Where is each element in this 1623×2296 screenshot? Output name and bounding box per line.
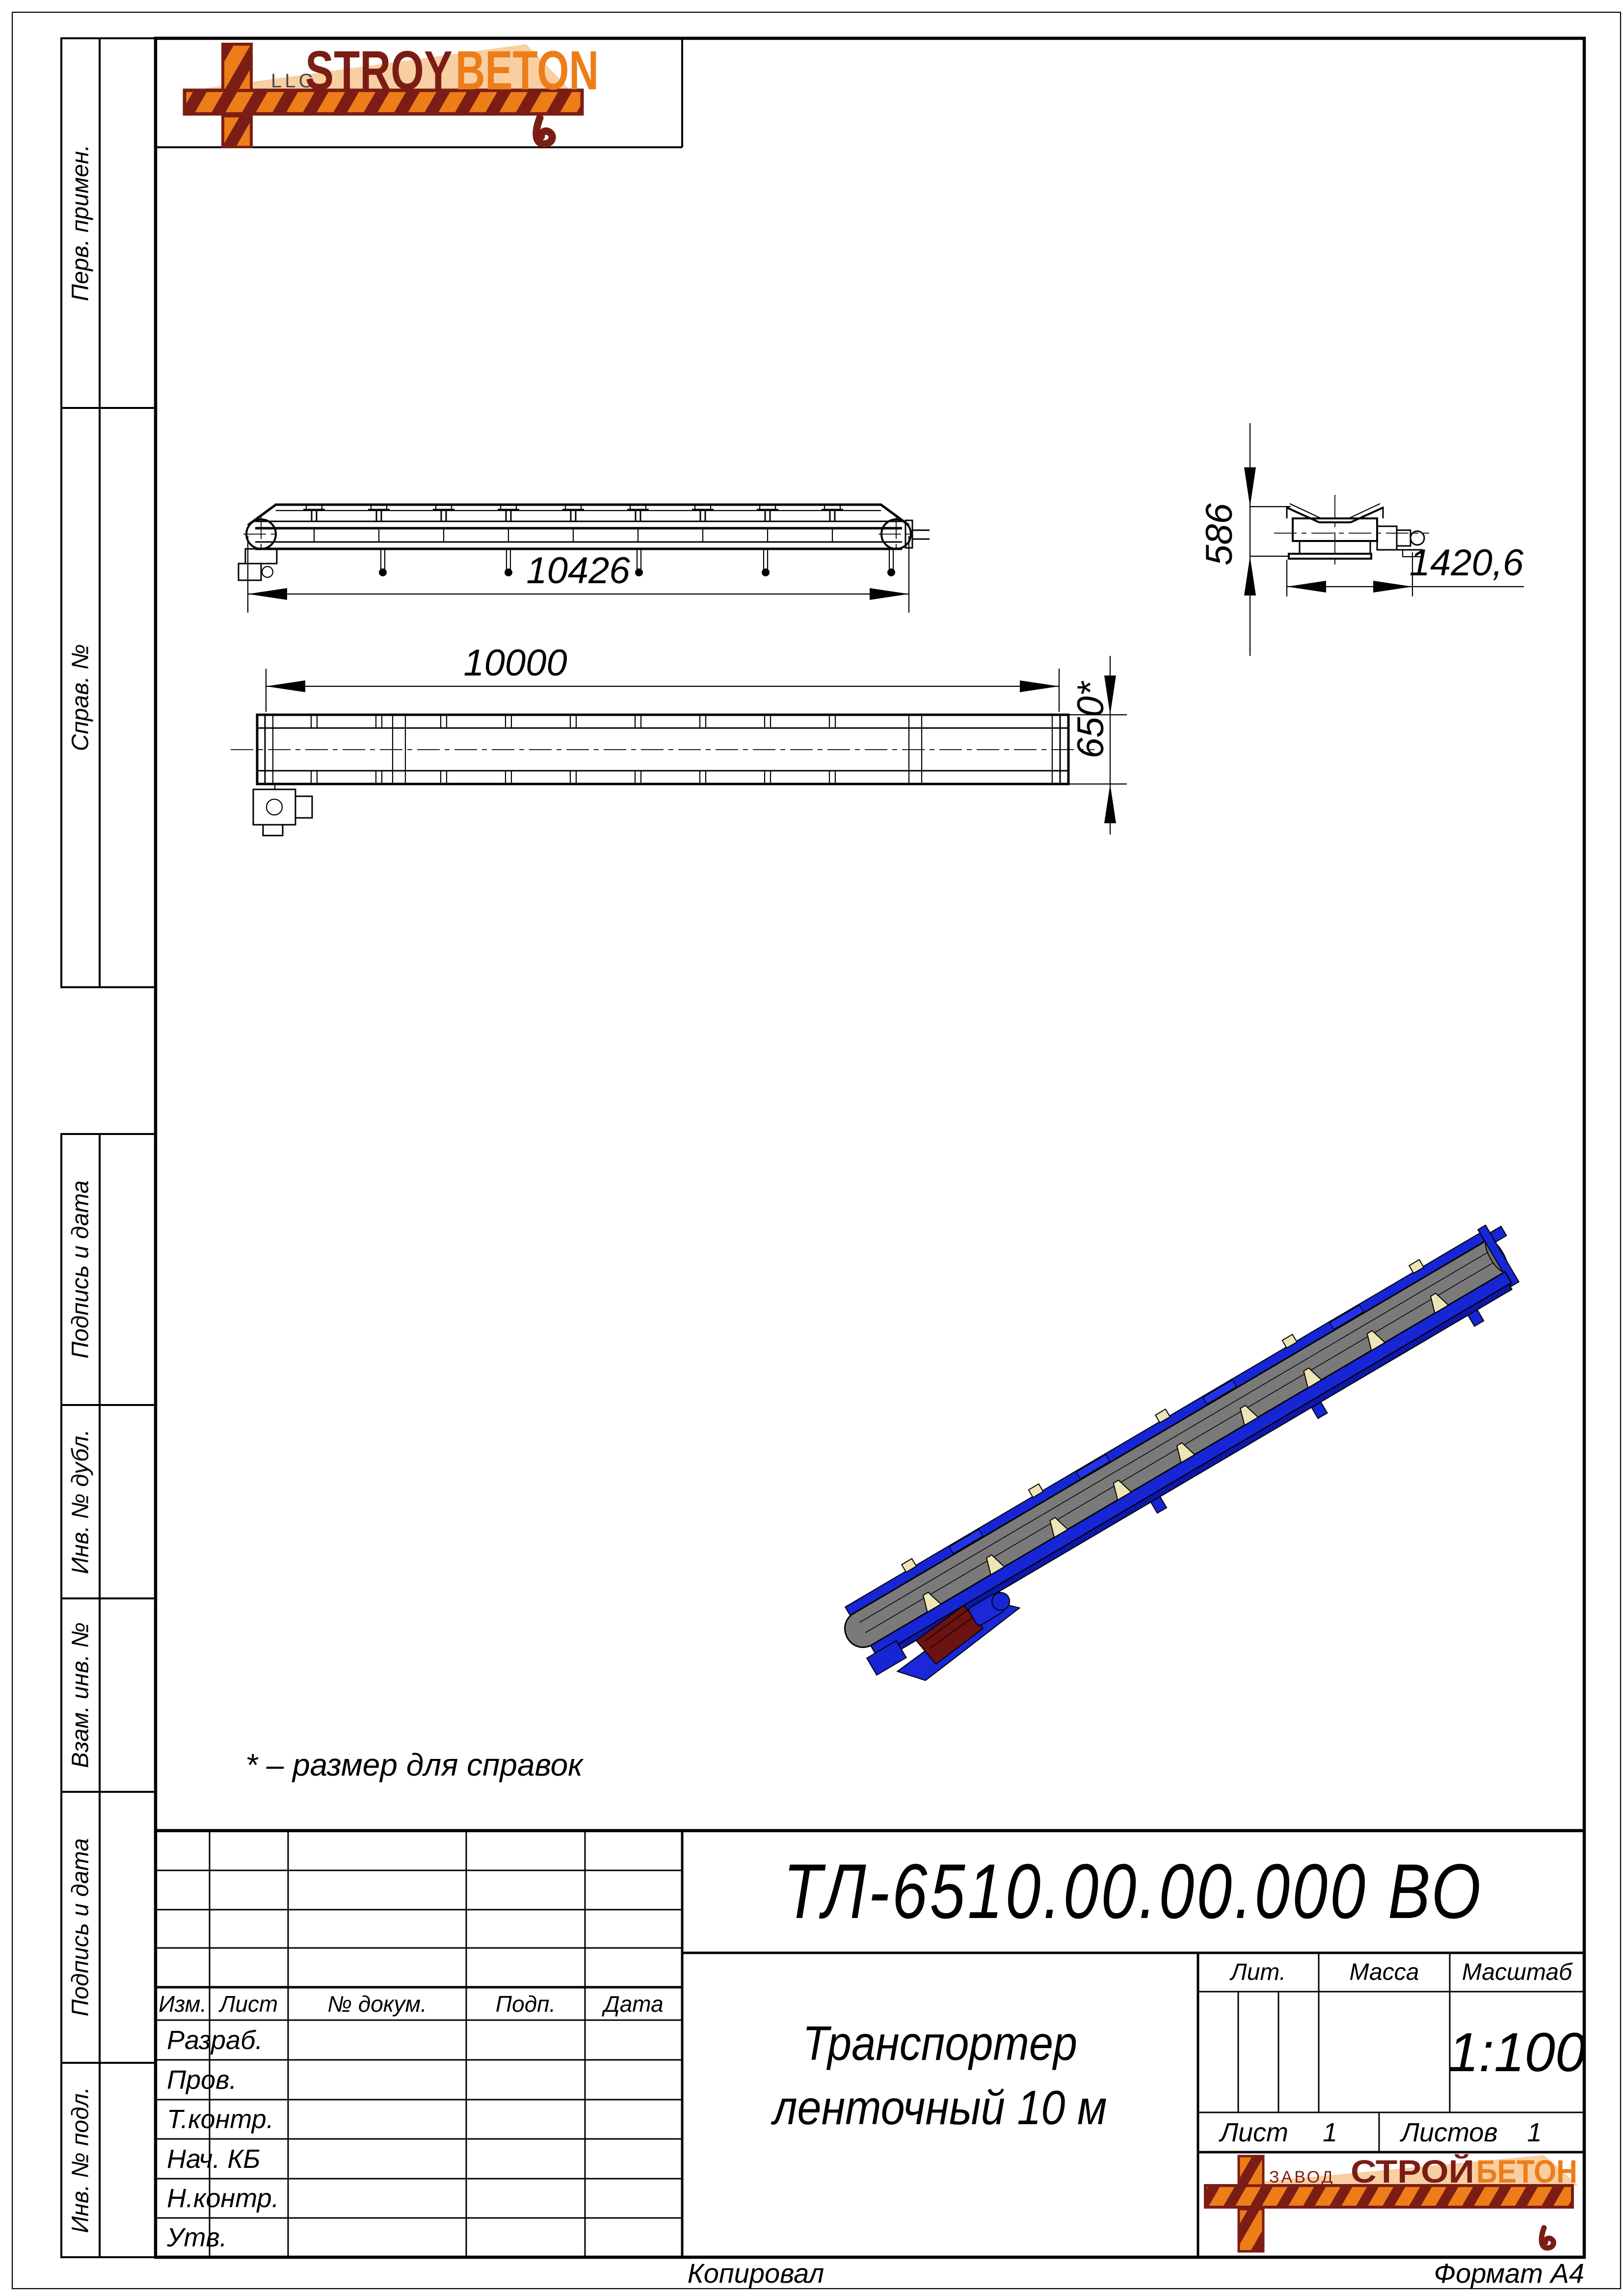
sidebar-label-vzam-inv: Взам. инв. № xyxy=(67,1622,94,1768)
roller-stands xyxy=(303,505,843,542)
row-razrab: Разраб. xyxy=(167,2020,294,2060)
iso-view xyxy=(829,1216,1551,1704)
bottom-logo: ЗАВОД СТРОЙ БЕТОН xyxy=(1200,2154,1582,2255)
sidebar-label-inv-dubl: Инв. № дубл. xyxy=(67,1429,94,1574)
plan-drive-unit xyxy=(253,784,312,836)
col-header-list: Лист xyxy=(210,1987,288,2020)
logo-stroy-text: STROY xyxy=(305,40,452,101)
dim-text-belt-width: 650* xyxy=(1070,680,1112,758)
mass-header: Масса xyxy=(1319,1953,1450,1992)
logo-crane-mast-top xyxy=(223,44,251,90)
sheets-label: Листов xyxy=(1401,2117,1498,2148)
top-logo: LLC STROY BETON xyxy=(162,40,613,148)
dim-text-drive-height: 586 xyxy=(1198,503,1240,566)
product-name-line1: Транспортер xyxy=(803,2016,1078,2071)
support-feet xyxy=(379,549,895,576)
dim-drive-height: 586 xyxy=(1198,423,1291,656)
logo-beton-text: БЕТОН xyxy=(1476,2154,1577,2189)
logo-crane-mast-top xyxy=(1239,2156,1263,2186)
logo-beton-text: BETON xyxy=(455,40,599,101)
row-nach-kb: Нач. КБ xyxy=(167,2139,294,2179)
iso-belt xyxy=(838,1241,1505,1654)
row-utv: Утв. xyxy=(167,2218,294,2257)
logo-stroy-text: СТРОЙ xyxy=(1351,2154,1474,2189)
sheet-cell: Лист 1 xyxy=(1220,2112,1379,2152)
dim-belt-width: 650* xyxy=(1068,656,1127,835)
row-tkontr: Т.контр. xyxy=(167,2100,294,2139)
end-view xyxy=(1274,495,1429,567)
col-header-dokum: № докум. xyxy=(288,1987,466,2020)
sidebar-label-sprav-no: Справ. № xyxy=(67,644,94,751)
logo-zavod-text: ЗАВОД xyxy=(1269,2168,1335,2187)
sidebar-label-podpis-data-1: Подпись и дата xyxy=(67,1180,94,1358)
sidebar-label-inv-podl: Инв. № подл. xyxy=(67,2087,94,2233)
dim-text-frame-length: 10000 xyxy=(463,642,567,684)
dim-text-end-width: 1420,6 xyxy=(1410,542,1524,584)
lit-header: Лит. xyxy=(1198,1953,1319,1992)
dim-overall-length: 10426 xyxy=(248,536,909,613)
logo-hook-icon xyxy=(536,118,552,144)
col-header-data: Дата xyxy=(585,1987,682,2020)
scale-value: 1:100 xyxy=(1450,1992,1584,2112)
iso-far-frame xyxy=(841,1224,1489,1616)
row-nkontr: Н.контр. xyxy=(167,2179,294,2218)
sidebar-label-perv-primen: Перв. примен. xyxy=(67,144,94,301)
sidebar-label-podpis-data-2: Подпись и дата xyxy=(67,1838,94,2016)
logo-crane-mast-bottom xyxy=(1239,2209,1263,2251)
footer-copied-label: Копировал xyxy=(584,2258,928,2288)
reference-note: * – размер для справок xyxy=(245,1745,687,1784)
sheets-value: 1 xyxy=(1527,2117,1542,2148)
iso-roller-brackets xyxy=(919,1291,1448,1612)
product-name-box: Транспортер ленточный 10 м xyxy=(682,1953,1198,2257)
col-header-izm: Изм. xyxy=(156,1987,210,2020)
row-prov: Пров. xyxy=(167,2060,294,2100)
drawing-designation: ТЛ-6510.00.00.000 ВО xyxy=(763,1831,1503,1953)
scale-header: Масштаб xyxy=(1450,1953,1584,1992)
plan-view xyxy=(231,715,1094,836)
dim-text-overall-length: 10426 xyxy=(526,550,630,592)
col-header-podp: Подп. xyxy=(466,1987,585,2020)
sheet-value: 1 xyxy=(1323,2117,1337,2148)
dim-frame-length: 10000 xyxy=(266,642,1059,712)
logo-crane-mast-bottom xyxy=(223,116,251,147)
logo-hook-icon xyxy=(1542,2228,1554,2248)
sheet-label: Лист xyxy=(1220,2117,1288,2148)
sheets-cell: Листов 1 xyxy=(1401,2112,1584,2152)
product-name-line2: ленточный 10 м xyxy=(773,2080,1107,2135)
footer-format-label: Формат А4 xyxy=(1325,2258,1584,2288)
